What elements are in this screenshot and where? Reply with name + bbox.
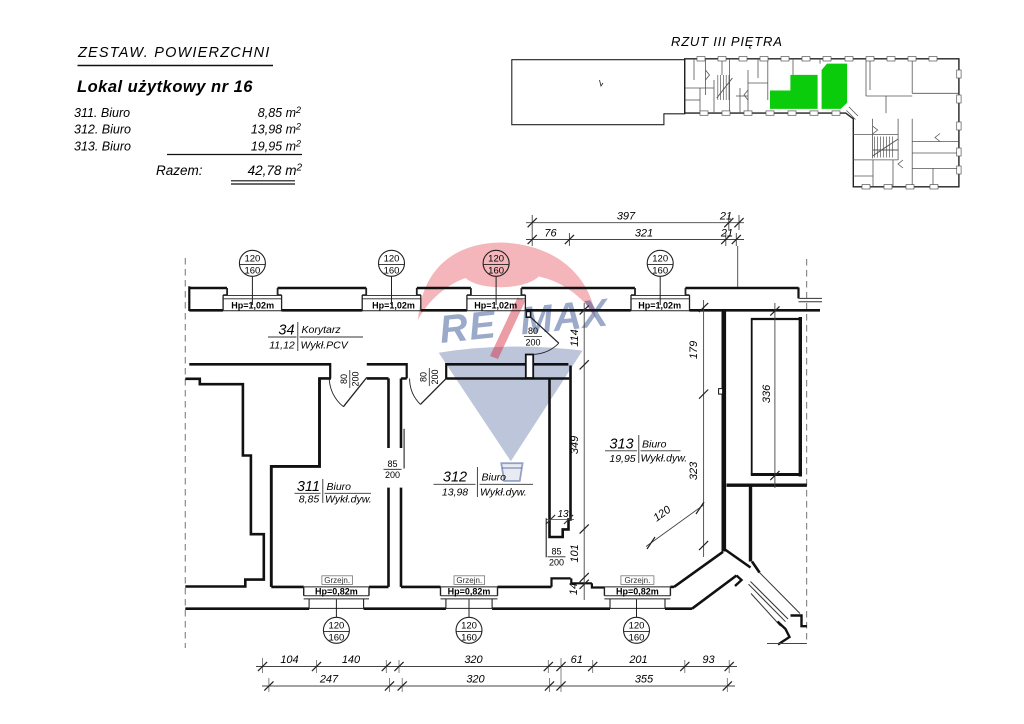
svg-text:Wykł.PCV: Wykł.PCV [301,340,349,352]
svg-text:21: 21 [720,227,733,239]
svg-text:247: 247 [319,674,339,686]
svg-text:313: 313 [609,437,633,453]
svg-text:80: 80 [528,326,538,336]
svg-text:160: 160 [652,266,668,277]
svg-text:19,95: 19,95 [609,453,635,465]
svg-text:160: 160 [461,633,477,644]
svg-text:120: 120 [461,621,477,632]
svg-text:Biuro: Biuro [327,481,352,493]
svg-text:Wykł.dyw.: Wykł.dyw. [641,453,688,465]
svg-text:8,85 m2: 8,85 m2 [258,105,301,120]
svg-text:120: 120 [629,621,645,632]
svg-text:349: 349 [569,436,581,454]
svg-text:85: 85 [387,459,397,469]
svg-text:114: 114 [569,329,581,347]
svg-text:Biuro: Biuro [482,472,507,484]
svg-text:355: 355 [635,674,654,686]
svg-text:320: 320 [464,654,483,666]
svg-text:Wykł.dyw.: Wykł.dyw. [480,487,527,499]
svg-text:200: 200 [430,369,440,384]
svg-text:76: 76 [544,227,557,239]
svg-text:8,85: 8,85 [299,494,320,506]
svg-text:11,12: 11,12 [269,340,295,352]
svg-text:Hp=0,82m: Hp=0,82m [616,587,659,597]
svg-text:42,78 m2: 42,78 m2 [248,163,303,179]
svg-text:160: 160 [629,633,645,644]
svg-text:179: 179 [688,341,700,359]
svg-text:Korytarz: Korytarz [302,324,342,336]
svg-text:Grzejn.: Grzejn. [456,576,482,585]
svg-text:311. Biuro: 311. Biuro [74,106,130,120]
svg-text:13,98: 13,98 [442,487,468,499]
svg-text:Hp=0,82m: Hp=0,82m [448,587,491,597]
svg-text:120: 120 [244,254,260,265]
svg-text:320: 320 [466,674,485,686]
svg-text:Grzejn.: Grzejn. [625,576,651,585]
svg-text:101: 101 [569,544,581,562]
svg-text:13,98 m2: 13,98 m2 [251,122,301,137]
svg-text:321: 321 [635,227,653,239]
svg-text:Lokal użytkowy nr 16: Lokal użytkowy nr 16 [77,78,253,96]
svg-text:160: 160 [328,633,344,644]
svg-text:Hp=0,82m: Hp=0,82m [315,587,358,597]
svg-text:80: 80 [419,372,429,382]
svg-text:200: 200 [549,558,564,568]
svg-text:312. Biuro: 312. Biuro [74,123,131,137]
svg-text:313. Biuro: 313. Biuro [74,140,131,154]
svg-text:Biuro: Biuro [642,439,667,451]
svg-text:140: 140 [342,654,361,666]
svg-text:80: 80 [339,374,349,384]
svg-text:120: 120 [488,254,504,265]
svg-text:14: 14 [568,583,580,595]
svg-text:21: 21 [719,211,732,223]
svg-text:120: 120 [328,621,344,632]
svg-text:85: 85 [551,547,561,557]
svg-text:Hp=1,02m: Hp=1,02m [372,301,415,311]
svg-text:RZUT III PIĘTRA: RZUT III PIĘTRA [671,34,783,49]
svg-text:Wykł.dyw.: Wykł.dyw. [325,494,372,506]
svg-text:397: 397 [617,211,636,223]
svg-text:200: 200 [525,338,540,348]
svg-text:201: 201 [628,654,647,666]
svg-text:104: 104 [280,654,298,666]
svg-text:ZESTAW. POWIERZCHNI: ZESTAW. POWIERZCHNI [77,45,271,61]
svg-text:120: 120 [652,254,668,265]
svg-text:160: 160 [384,266,400,277]
svg-text:19,95 m2: 19,95 m2 [251,139,301,154]
svg-text:312: 312 [443,470,467,486]
svg-text:336: 336 [761,384,773,403]
svg-text:Grzejn.: Grzejn. [324,576,350,585]
svg-text:200: 200 [385,470,400,480]
svg-text:61: 61 [571,654,583,666]
svg-text:200: 200 [351,371,361,386]
svg-text:13: 13 [557,509,569,520]
svg-text:34: 34 [278,323,294,339]
svg-text:160: 160 [488,266,504,277]
svg-text:93: 93 [702,654,715,666]
svg-text:160: 160 [244,266,260,277]
svg-text:323: 323 [688,461,700,480]
svg-text:Razem:: Razem: [156,163,203,178]
svg-text:120: 120 [384,254,400,265]
